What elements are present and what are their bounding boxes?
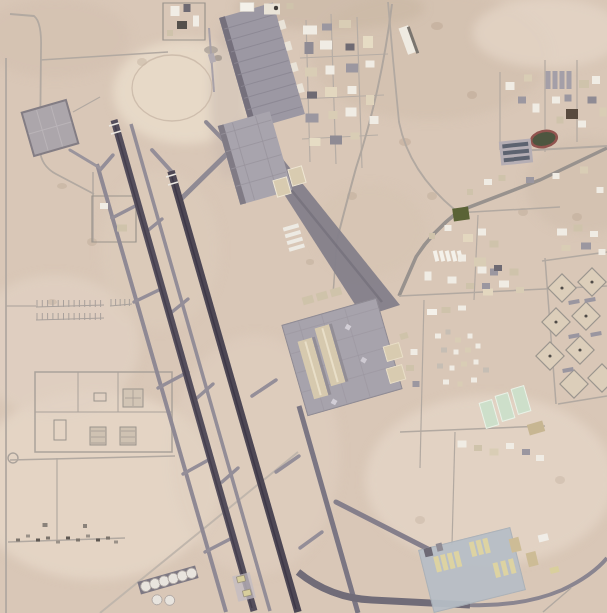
settlement-hut	[106, 537, 110, 540]
building	[565, 95, 572, 102]
building	[580, 167, 588, 174]
barracks-row	[560, 71, 565, 89]
settlement-hut	[56, 541, 60, 544]
building	[326, 66, 335, 75]
building	[305, 68, 317, 77]
building	[467, 189, 473, 195]
building	[366, 95, 374, 105]
building	[458, 441, 467, 448]
building	[466, 283, 474, 289]
building	[117, 225, 127, 232]
building	[370, 116, 379, 124]
diamond-center-mark	[578, 348, 581, 351]
building	[448, 277, 457, 284]
settlement-hut	[66, 537, 70, 540]
building	[506, 82, 515, 90]
tree-patch	[452, 206, 470, 221]
settlement-hut	[43, 523, 48, 527]
scrub-speck	[47, 299, 57, 305]
depot-building	[458, 382, 463, 387]
building	[522, 449, 530, 455]
building	[590, 231, 598, 237]
building	[499, 281, 509, 288]
building	[553, 173, 560, 179]
building	[346, 44, 355, 51]
depot-building	[441, 348, 447, 353]
building	[526, 177, 534, 183]
diamond-center-mark	[554, 320, 557, 323]
settlement-hut	[16, 539, 20, 542]
settlement-hut	[26, 535, 30, 538]
depot-building	[443, 380, 449, 385]
depot-building	[437, 364, 443, 369]
diamond-center-mark	[560, 286, 563, 289]
building	[363, 36, 373, 48]
dark-brown-building	[566, 109, 578, 119]
building	[305, 42, 314, 54]
settlement-hut	[36, 539, 40, 542]
scrub-speck	[137, 58, 147, 66]
building	[499, 175, 506, 181]
building	[557, 117, 564, 124]
building	[329, 111, 338, 119]
depot-building	[483, 368, 489, 373]
building	[346, 64, 358, 73]
settlement-hut	[46, 537, 50, 540]
building	[177, 21, 187, 29]
building	[478, 229, 486, 236]
scrub-speck	[415, 516, 425, 524]
scrub-speck	[57, 183, 67, 189]
settlement-hut	[96, 539, 100, 542]
scrub-speck	[306, 259, 314, 265]
building	[599, 249, 606, 255]
building	[320, 41, 332, 50]
building	[490, 241, 499, 248]
rooftop-unit	[274, 6, 278, 10]
hatched-pad	[90, 427, 106, 445]
depot-building	[461, 362, 467, 367]
building	[303, 26, 317, 35]
building	[484, 179, 492, 185]
building	[171, 6, 180, 16]
building	[429, 233, 435, 239]
building	[346, 108, 357, 117]
building	[193, 16, 199, 27]
building	[552, 97, 560, 104]
diamond-center-mark	[590, 280, 593, 283]
building	[536, 455, 544, 461]
dark-panel-building	[502, 142, 530, 163]
building	[524, 75, 532, 82]
building	[592, 76, 600, 84]
building	[307, 92, 317, 99]
depot-building	[474, 360, 479, 365]
scrub-speck	[467, 91, 477, 99]
diamond-center-mark	[548, 354, 551, 357]
building	[557, 229, 567, 236]
building	[406, 365, 414, 371]
building	[411, 349, 418, 355]
building	[306, 114, 319, 123]
building	[578, 121, 586, 128]
barracks-row	[567, 71, 572, 89]
barracks-row	[546, 71, 551, 89]
building	[562, 245, 571, 251]
depot-building	[468, 334, 473, 339]
building	[533, 104, 540, 113]
satellite-imagery	[0, 0, 607, 613]
building	[474, 445, 482, 451]
building	[600, 108, 607, 117]
building	[100, 203, 108, 209]
building	[463, 234, 473, 242]
settlement-hut	[76, 539, 80, 542]
depot-building	[450, 366, 455, 371]
building	[339, 20, 351, 28]
scrub-speck	[427, 192, 437, 200]
building	[425, 272, 432, 281]
satellite-map-view: Satellite aerial view of a desert air ba…	[0, 0, 607, 613]
building	[413, 381, 420, 387]
scrub-speck	[555, 476, 565, 484]
building	[581, 243, 591, 250]
building	[330, 136, 342, 145]
building	[167, 30, 173, 36]
building	[458, 306, 466, 311]
building	[458, 255, 466, 262]
building	[322, 24, 332, 31]
building	[518, 97, 526, 104]
building	[506, 443, 514, 449]
building	[588, 97, 597, 104]
depot-building	[455, 338, 461, 343]
settlement-hut	[114, 541, 118, 544]
building	[516, 287, 524, 293]
building	[287, 3, 294, 9]
depot-building	[471, 378, 477, 383]
building	[579, 80, 589, 88]
barracks-row	[553, 71, 558, 89]
building	[366, 61, 375, 68]
settlement-hut	[86, 535, 90, 538]
building	[510, 269, 519, 276]
settlement-hut	[83, 524, 87, 528]
building	[351, 133, 360, 140]
dark-panel-building	[499, 138, 533, 165]
hatched-pad	[120, 427, 136, 445]
building	[442, 307, 451, 313]
scrub-speck	[431, 22, 443, 30]
building	[474, 258, 486, 267]
building	[574, 225, 583, 232]
building	[310, 138, 321, 146]
depot-building	[454, 350, 459, 355]
white-building	[240, 3, 254, 12]
building	[478, 267, 487, 274]
scrub-speck	[572, 213, 582, 221]
depot-building	[465, 348, 471, 353]
building	[325, 87, 337, 97]
building	[427, 309, 437, 315]
sand-patch	[100, 170, 220, 330]
building	[597, 187, 604, 193]
building	[483, 289, 493, 296]
building	[445, 225, 452, 231]
building	[490, 449, 499, 456]
diamond-center-mark	[584, 314, 587, 317]
depot-building	[476, 344, 481, 349]
depot-building	[435, 334, 441, 339]
depot-building	[446, 330, 451, 335]
building	[348, 86, 357, 94]
building	[482, 283, 490, 289]
building	[494, 265, 502, 271]
building	[184, 4, 191, 12]
